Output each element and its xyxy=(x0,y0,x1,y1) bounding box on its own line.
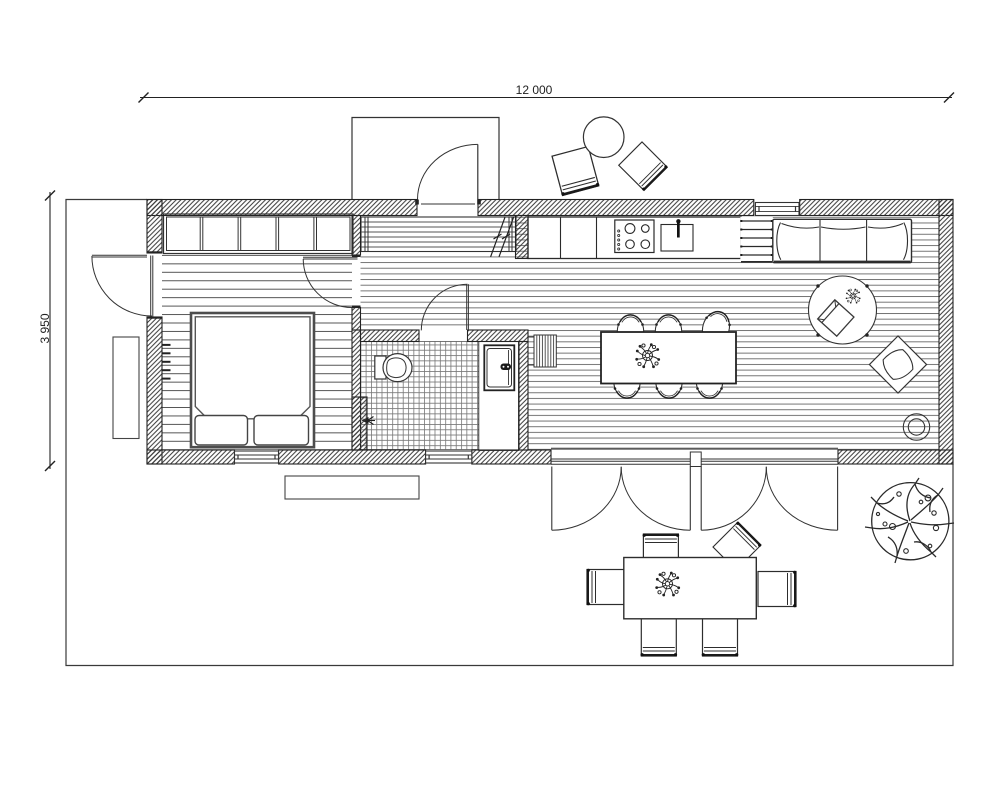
svg-text:3 950: 3 950 xyxy=(38,313,52,343)
svg-text:12 000: 12 000 xyxy=(516,83,553,97)
